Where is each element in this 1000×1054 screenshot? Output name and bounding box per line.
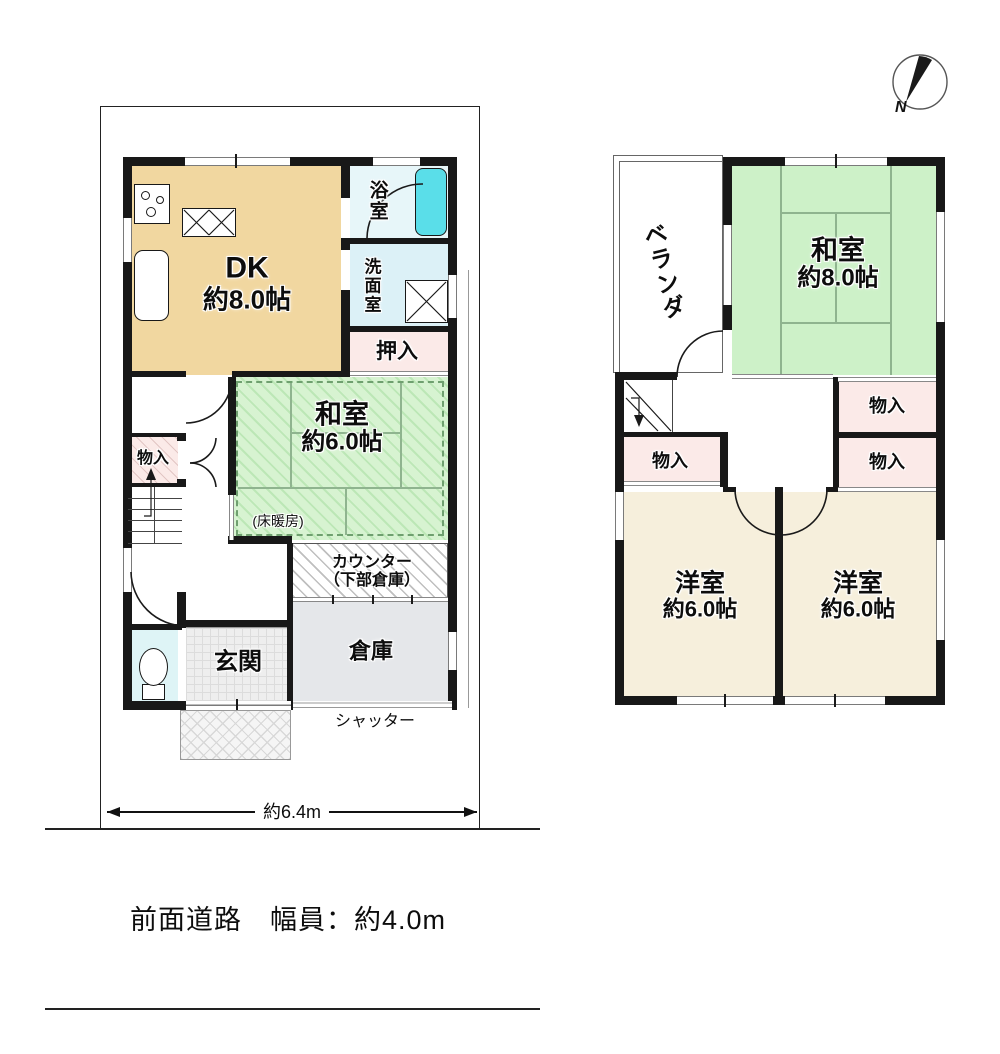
floor-heating-note: (床暖房) bbox=[252, 514, 303, 530]
room-washroom-label: 洗面室 bbox=[361, 258, 380, 315]
room-washitsu-1f-name: 和室 bbox=[301, 399, 382, 429]
room-western-right-name: 洋室 bbox=[821, 570, 896, 598]
road-bottom-line bbox=[45, 1008, 540, 1010]
dimension-label: 約6.4m bbox=[255, 802, 329, 822]
shutter-label: シャッター bbox=[335, 713, 415, 731]
road-edge-line bbox=[45, 828, 540, 830]
dimension-arrow-left bbox=[107, 807, 120, 817]
room-washitsu-2f-name: 和室 bbox=[797, 235, 878, 265]
room-western-right-label: 洋室 約6.0帖 bbox=[821, 570, 896, 623]
washer-x-lines bbox=[407, 282, 446, 321]
room-closet-1f-label: 物入 bbox=[137, 450, 169, 468]
front-road-label: 前面道路 幅員：約4.0m bbox=[130, 898, 446, 937]
door-arc bbox=[677, 331, 723, 377]
counter-x-lines bbox=[184, 210, 234, 235]
room-dk-name: DK bbox=[203, 252, 291, 286]
folding-door-arc bbox=[190, 438, 216, 463]
closet-2f-right-lower-label: 物入 bbox=[869, 452, 905, 472]
closet-2f-right-upper-label: 物入 bbox=[869, 396, 905, 416]
counter-label-line1: カウンター bbox=[324, 554, 420, 572]
room-dk-label: DK 約8.0帖 bbox=[203, 252, 291, 315]
room-washitsu-1f-size: 約6.0帖 bbox=[301, 430, 382, 457]
room-washitsu-2f-label: 和室 約8.0帖 bbox=[797, 235, 878, 292]
door-arc bbox=[131, 572, 186, 626]
room-storage-label: 倉庫 bbox=[349, 640, 393, 665]
counter-label: カウンター （下部倉庫） bbox=[324, 554, 420, 590]
room-western-right-size: 約6.0帖 bbox=[821, 598, 896, 623]
door-arc bbox=[735, 489, 827, 535]
room-western-left-size: 約6.0帖 bbox=[663, 598, 738, 623]
room-bath-label: 浴室 bbox=[366, 180, 387, 222]
plan-detail-overlay bbox=[0, 0, 1000, 1054]
stairs-1f-arrow-line bbox=[144, 477, 151, 516]
stairs-2f-lines bbox=[626, 382, 671, 431]
room-dk-size: 約8.0帖 bbox=[203, 285, 291, 314]
folding-door-arc bbox=[190, 463, 216, 487]
closet-2f-left-label: 物入 bbox=[652, 451, 688, 471]
room-western-left-label: 洋室 約6.0帖 bbox=[663, 570, 738, 623]
room-washitsu-2f-size: 約8.0帖 bbox=[797, 266, 878, 293]
stairs-1f-arrowhead bbox=[146, 468, 156, 480]
door-arc bbox=[186, 377, 232, 423]
stairs-2f-arrowhead bbox=[634, 415, 644, 427]
compass-north-label: N bbox=[895, 99, 907, 116]
dimension-arrow-right bbox=[464, 807, 477, 817]
room-oshiire-label: 押入 bbox=[376, 340, 418, 364]
floor-plan-page: N DK 約8.0帖 浴室 洗面室 押入 和室 約6.0帖 (床暖房) カウンタ… bbox=[0, 0, 1000, 1054]
compass-icon: N bbox=[884, 44, 956, 116]
counter-label-line2: （下部倉庫） bbox=[324, 572, 420, 590]
room-western-left-name: 洋室 bbox=[663, 570, 738, 598]
room-washitsu-1f-label: 和室 約6.0帖 bbox=[301, 399, 382, 456]
room-genkan-label: 玄関 bbox=[214, 650, 262, 677]
